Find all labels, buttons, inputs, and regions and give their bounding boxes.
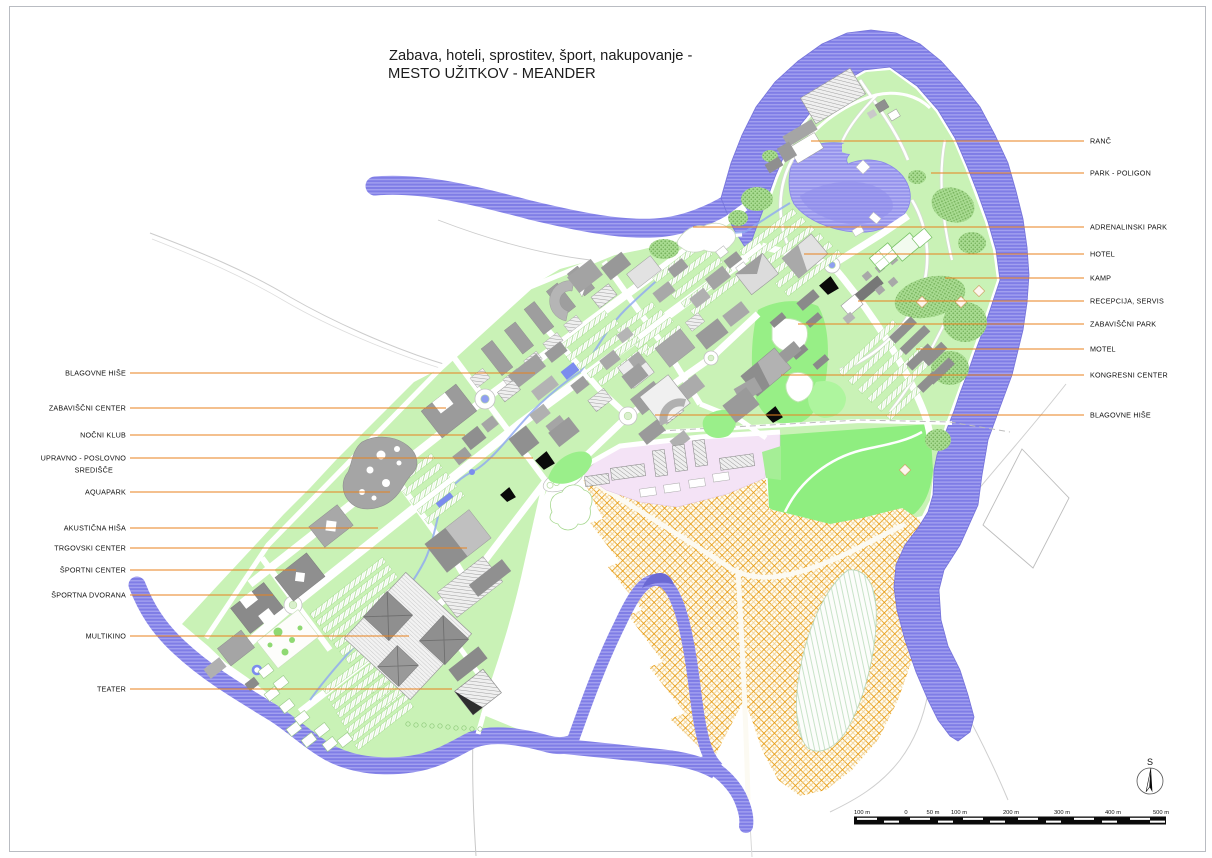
svg-text:BLAGOVNE HIŠE: BLAGOVNE HIŠE bbox=[65, 368, 126, 377]
svg-text:RECEPCIJA, SERVIS: RECEPCIJA, SERVIS bbox=[1090, 296, 1164, 305]
svg-text:AQUAPARK: AQUAPARK bbox=[85, 487, 126, 496]
svg-text:200 m: 200 m bbox=[1003, 810, 1019, 816]
svg-text:500 m: 500 m bbox=[1153, 810, 1169, 816]
svg-text:TRGOVSKI CENTER: TRGOVSKI CENTER bbox=[54, 543, 126, 552]
svg-text:300 m: 300 m bbox=[1054, 810, 1070, 816]
svg-text:100 m: 100 m bbox=[951, 810, 967, 816]
svg-text:KONGRESNI CENTER: KONGRESNI CENTER bbox=[1090, 370, 1168, 379]
svg-text:Zabava, hoteli, sprostitev, šp: Zabava, hoteli, sprostitev, šport, nakup… bbox=[389, 48, 693, 64]
svg-text:100 m: 100 m bbox=[854, 810, 870, 816]
svg-text:ZABAVIŠČNI CENTER: ZABAVIŠČNI CENTER bbox=[49, 403, 126, 412]
svg-text:ŠPORTNA DVORANA: ŠPORTNA DVORANA bbox=[51, 590, 126, 599]
svg-text:400 m: 400 m bbox=[1105, 810, 1121, 816]
svg-text:PARK - POLIGON: PARK - POLIGON bbox=[1090, 168, 1151, 177]
svg-text:MOTEL: MOTEL bbox=[1090, 344, 1116, 353]
svg-text:HOTEL: HOTEL bbox=[1090, 249, 1115, 258]
svg-text:AKUSTIČNA HIŠA: AKUSTIČNA HIŠA bbox=[64, 523, 126, 532]
svg-text:MESTO UŽITKOV - MEANDER: MESTO UŽITKOV - MEANDER bbox=[388, 65, 596, 82]
svg-text:50 m: 50 m bbox=[927, 810, 940, 816]
svg-text:SREDIŠČE: SREDIŠČE bbox=[75, 465, 113, 474]
svg-text:BLAGOVNE HIŠE: BLAGOVNE HIŠE bbox=[1090, 410, 1151, 419]
svg-text:MULTIKINO: MULTIKINO bbox=[86, 631, 127, 640]
svg-text:RANČ: RANČ bbox=[1090, 136, 1111, 145]
svg-text:ADRENALINSKI PARK: ADRENALINSKI PARK bbox=[1090, 222, 1167, 231]
svg-text:0: 0 bbox=[904, 810, 907, 816]
svg-text:ŠPORTNI CENTER: ŠPORTNI CENTER bbox=[60, 565, 126, 574]
svg-text:S: S bbox=[1147, 757, 1153, 767]
svg-text:NOČNI KLUB: NOČNI KLUB bbox=[80, 430, 126, 439]
svg-text:KAMP: KAMP bbox=[1090, 273, 1111, 282]
svg-text:UPRAVNO - POSLOVNO: UPRAVNO - POSLOVNO bbox=[41, 453, 127, 462]
svg-text:TEATER: TEATER bbox=[97, 684, 126, 693]
svg-text:ZABAVIŠČNI PARK: ZABAVIŠČNI PARK bbox=[1090, 319, 1156, 328]
